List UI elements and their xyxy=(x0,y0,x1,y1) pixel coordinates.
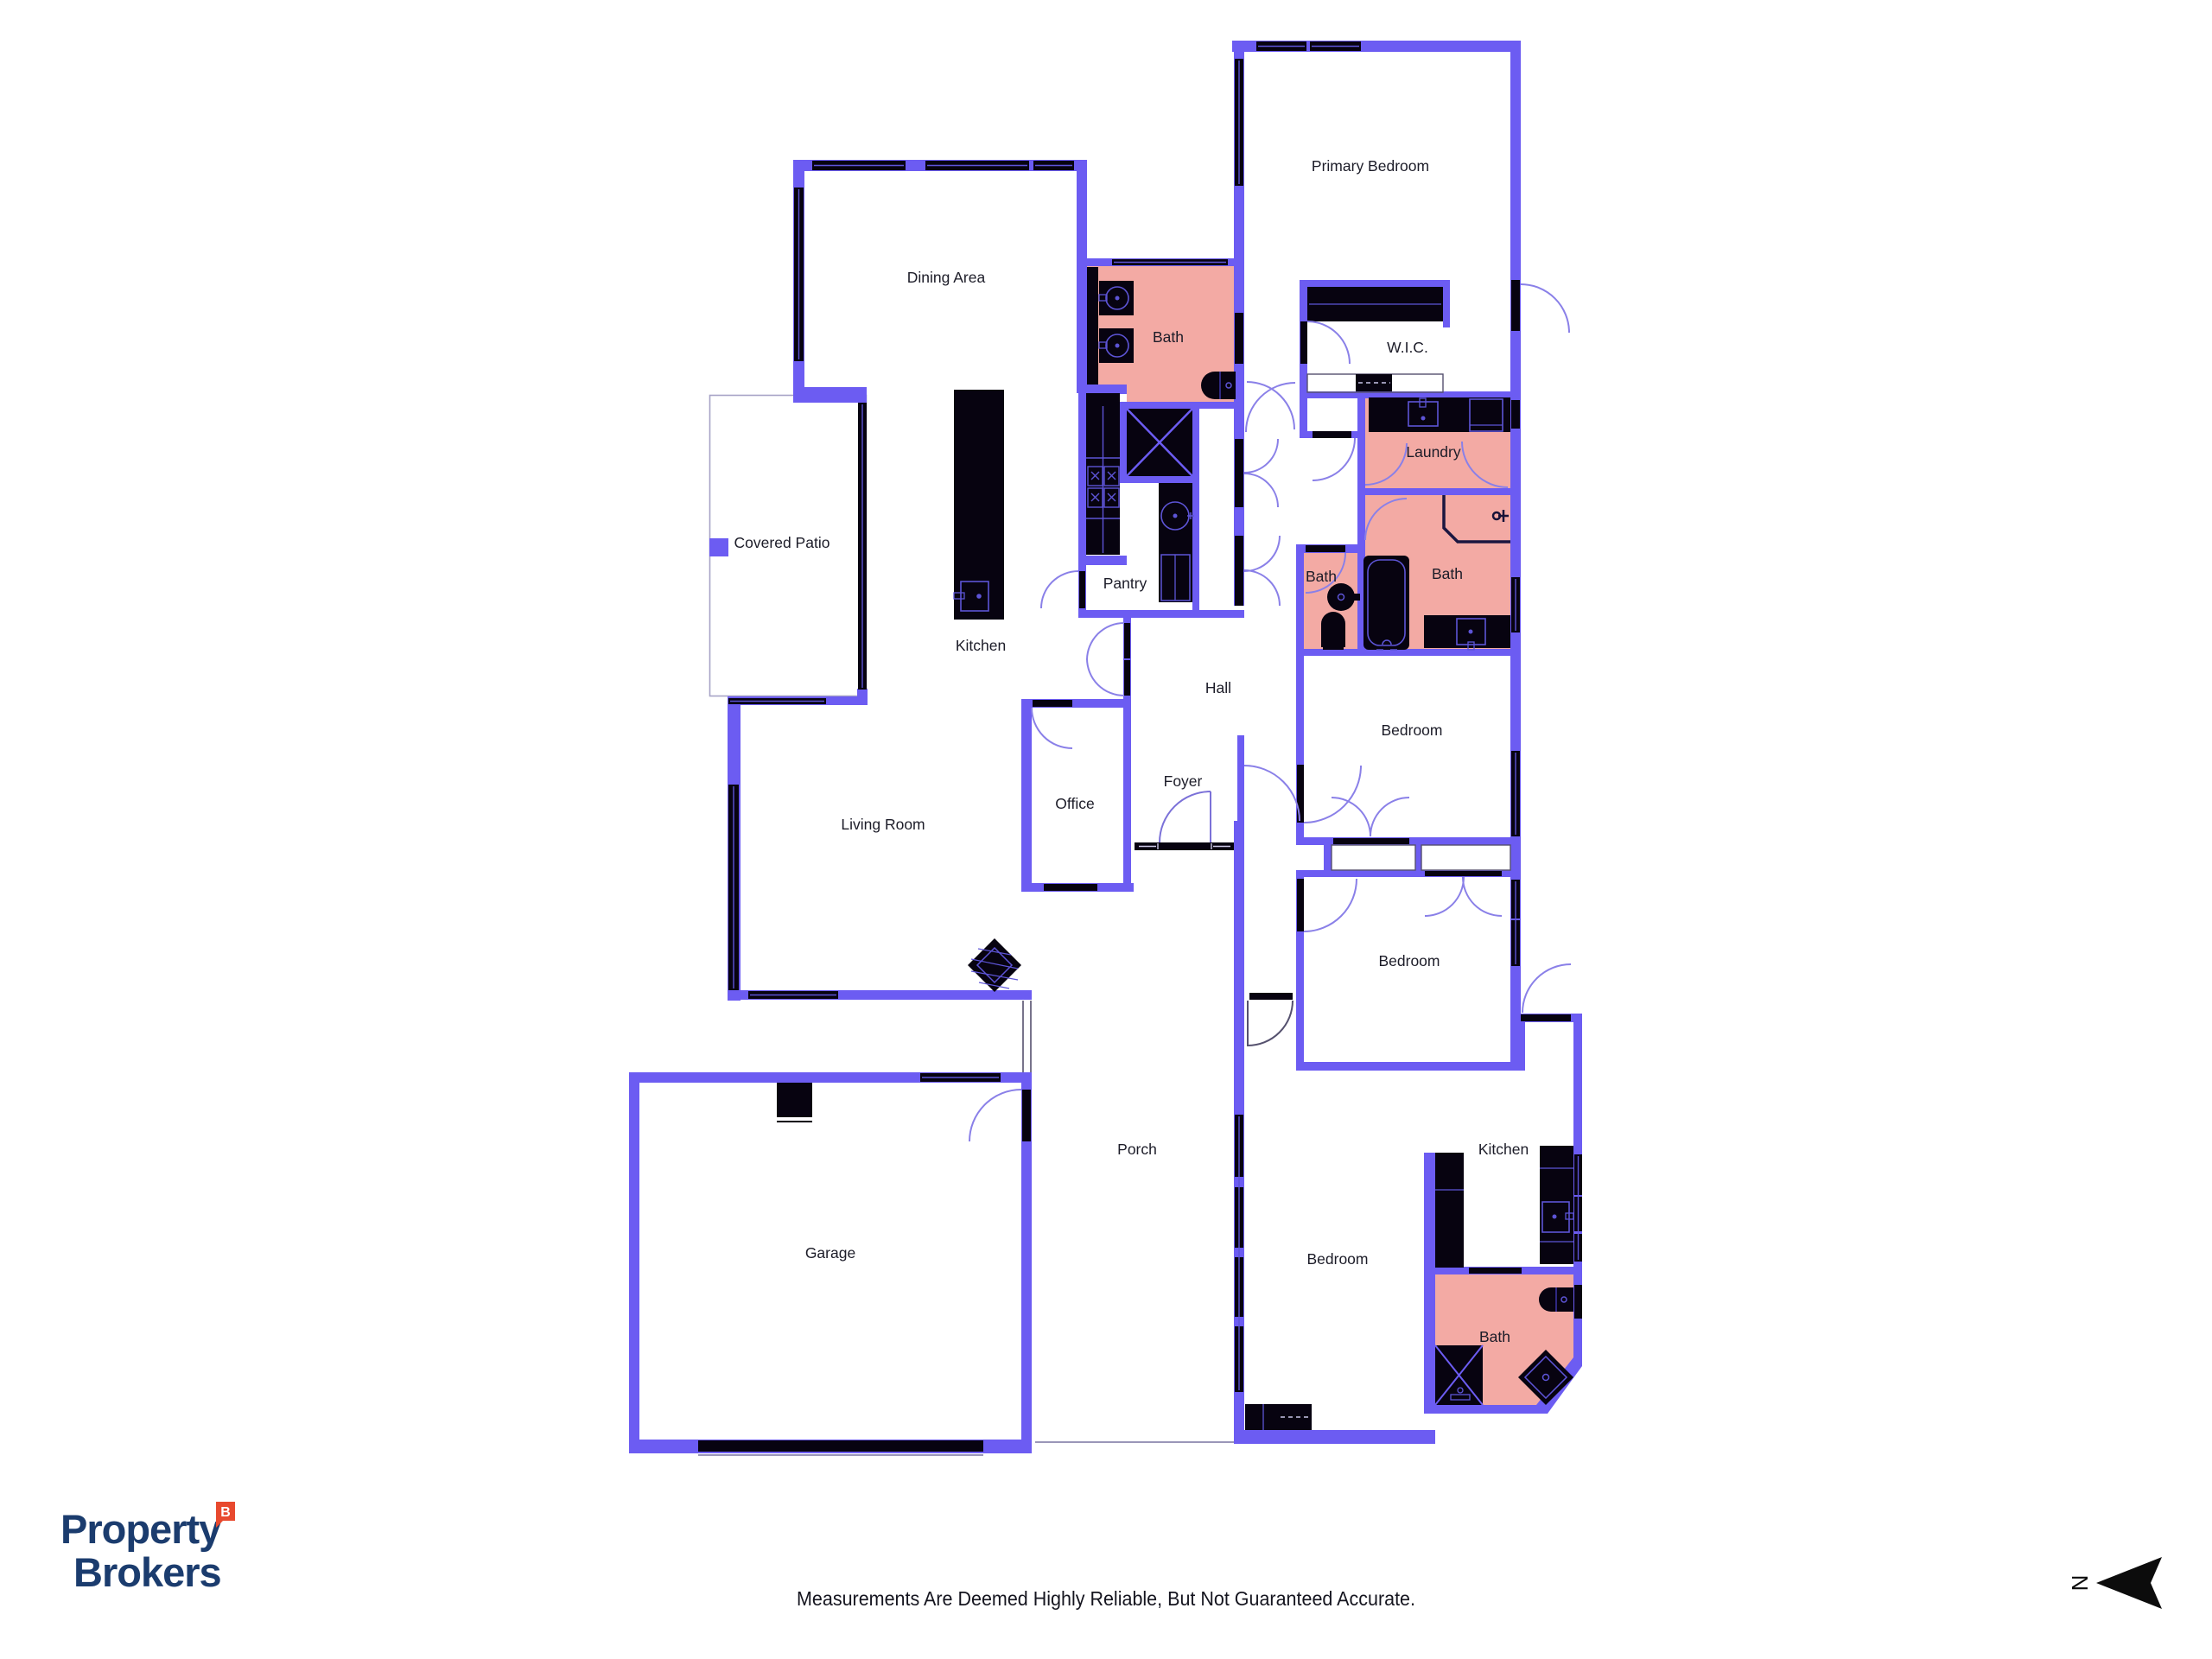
svg-text:Bath: Bath xyxy=(1153,328,1184,346)
svg-text:Covered Patio: Covered Patio xyxy=(734,534,830,551)
svg-text:Bedroom: Bedroom xyxy=(1378,952,1440,969)
svg-text:Office: Office xyxy=(1055,795,1094,812)
svg-text:Primary Bedroom: Primary Bedroom xyxy=(1312,157,1429,175)
svg-text:Brokers: Brokers xyxy=(73,1549,221,1595)
svg-text:Pantry: Pantry xyxy=(1103,575,1147,592)
svg-text:Measurements Are Deemed Highly: Measurements Are Deemed Highly Reliable,… xyxy=(797,1587,1415,1610)
svg-text:Bath: Bath xyxy=(1306,568,1337,585)
svg-text:Porch: Porch xyxy=(1117,1141,1157,1158)
svg-text:W.I.C.: W.I.C. xyxy=(1387,339,1428,356)
svg-text:Bedroom: Bedroom xyxy=(1306,1250,1368,1268)
svg-text:Hall: Hall xyxy=(1205,679,1231,696)
svg-text:Property: Property xyxy=(60,1506,221,1552)
svg-text:Bath: Bath xyxy=(1479,1328,1510,1345)
svg-text:Foyer: Foyer xyxy=(1164,772,1203,790)
svg-text:Laundry: Laundry xyxy=(1406,443,1460,461)
svg-text:B: B xyxy=(220,1505,231,1520)
svg-text:Bath: Bath xyxy=(1432,565,1463,582)
svg-text:Kitchen: Kitchen xyxy=(956,637,1006,654)
svg-text:Living Room: Living Room xyxy=(841,816,925,833)
svg-text:Dining Area: Dining Area xyxy=(907,269,986,286)
svg-text:Bedroom: Bedroom xyxy=(1381,721,1442,739)
svg-text:Garage: Garage xyxy=(805,1244,855,1262)
svg-text:N: N xyxy=(2067,1575,2093,1592)
svg-text:Kitchen: Kitchen xyxy=(1478,1141,1529,1158)
